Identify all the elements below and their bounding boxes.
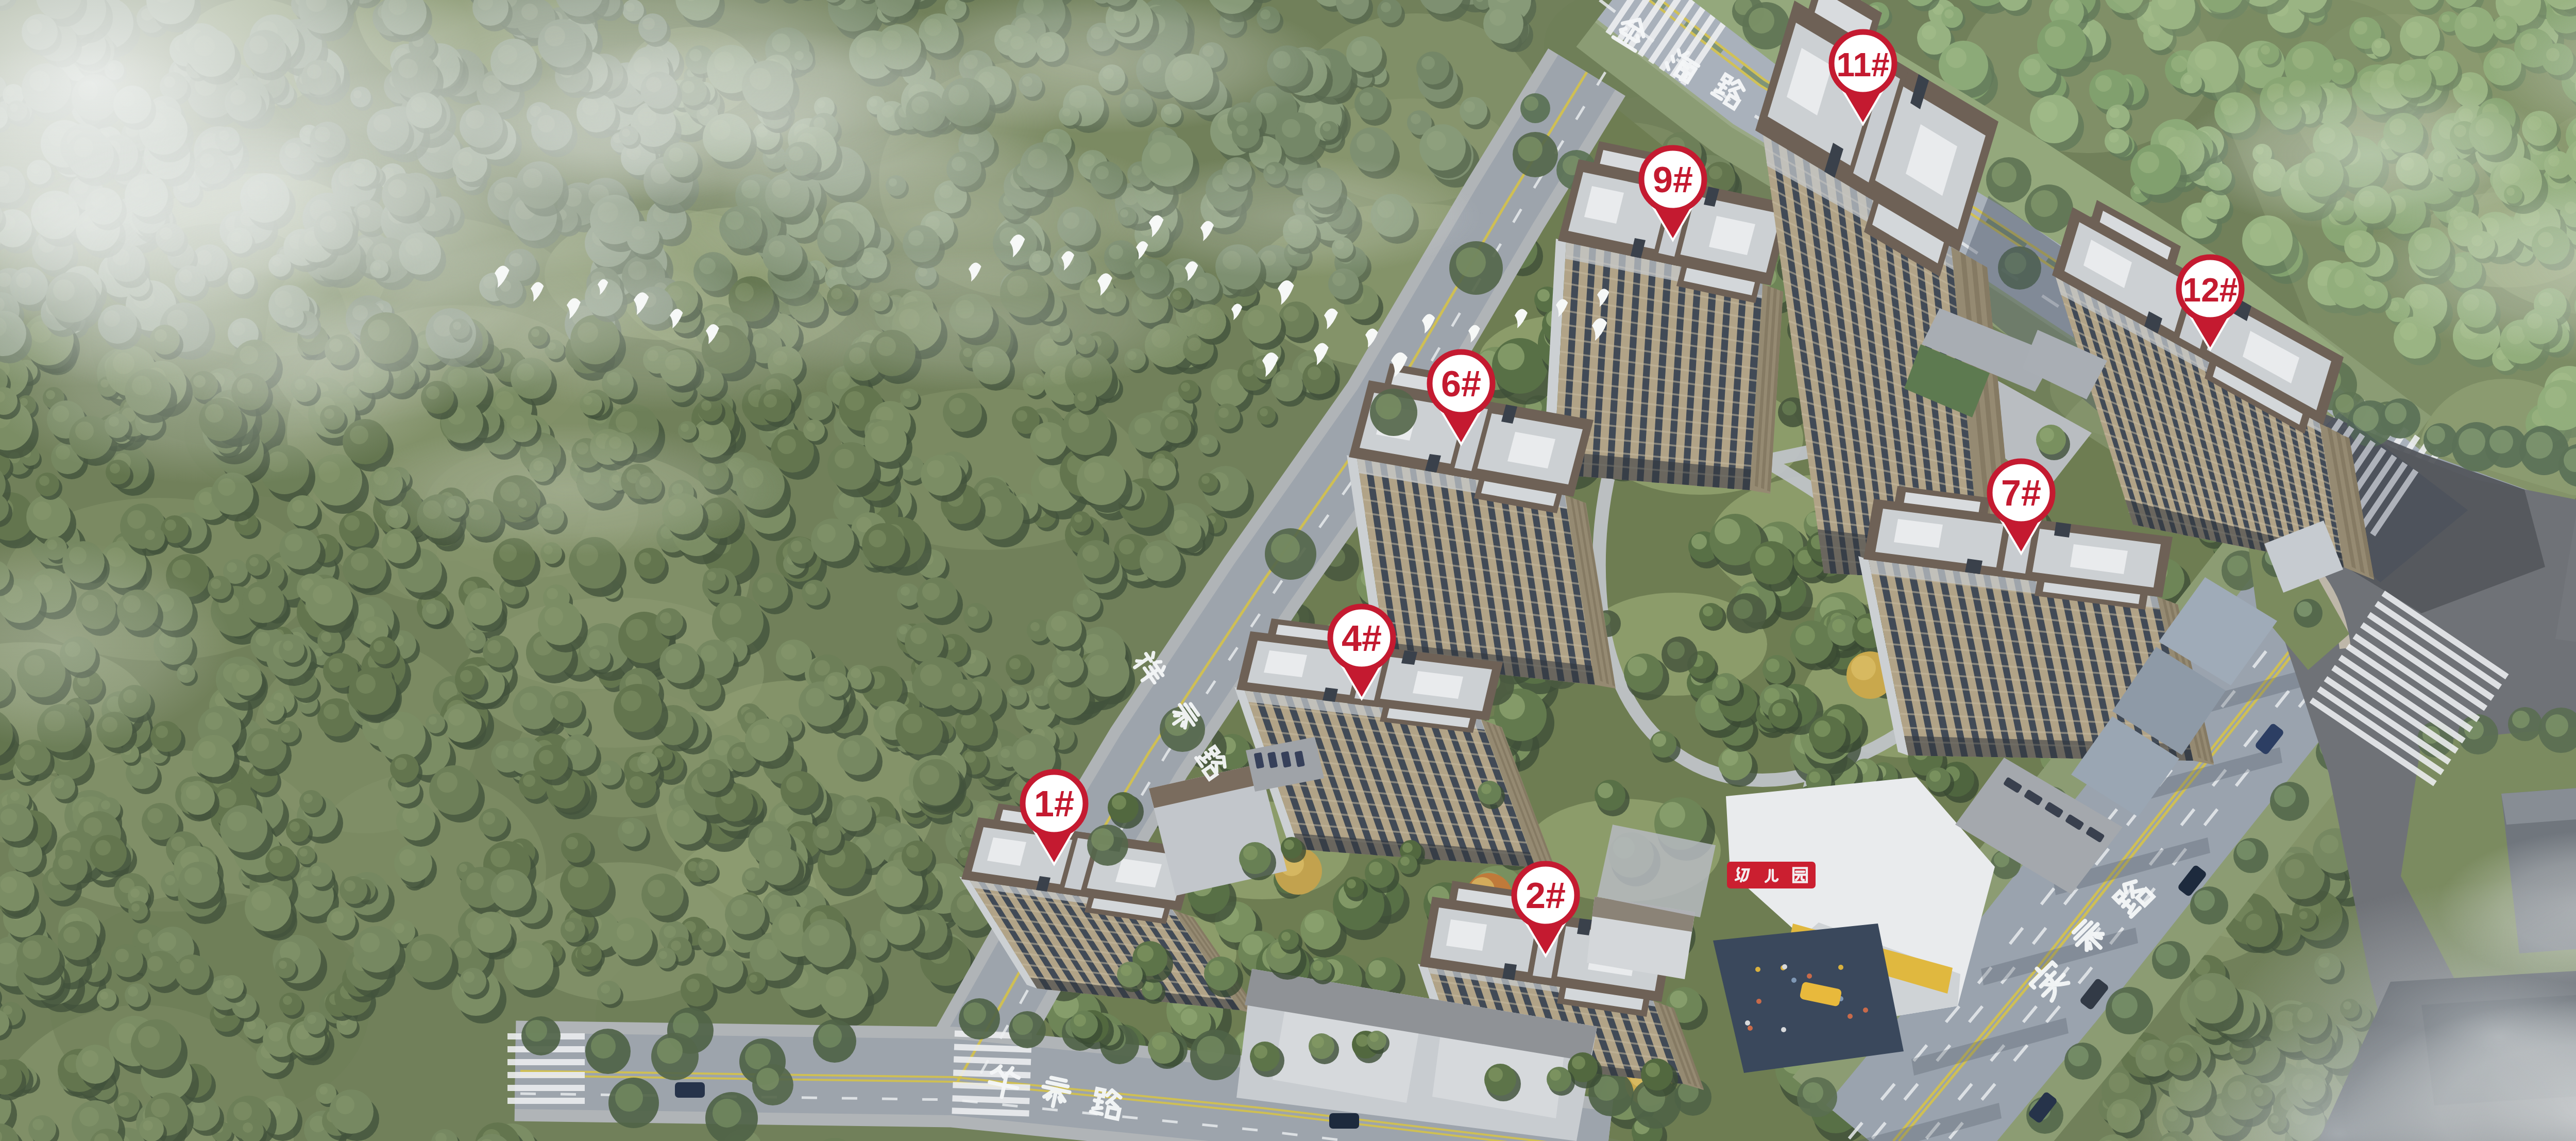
svg-text:6#: 6# <box>1441 364 1481 404</box>
svg-text:11#: 11# <box>1836 46 1889 83</box>
svg-text:1#: 1# <box>1034 784 1074 824</box>
svg-text:12#: 12# <box>2183 272 2238 309</box>
svg-text:4#: 4# <box>1342 618 1382 659</box>
svg-text:2#: 2# <box>1526 876 1566 916</box>
svg-text:7#: 7# <box>2001 473 2041 513</box>
svg-text:9#: 9# <box>1653 160 1693 200</box>
